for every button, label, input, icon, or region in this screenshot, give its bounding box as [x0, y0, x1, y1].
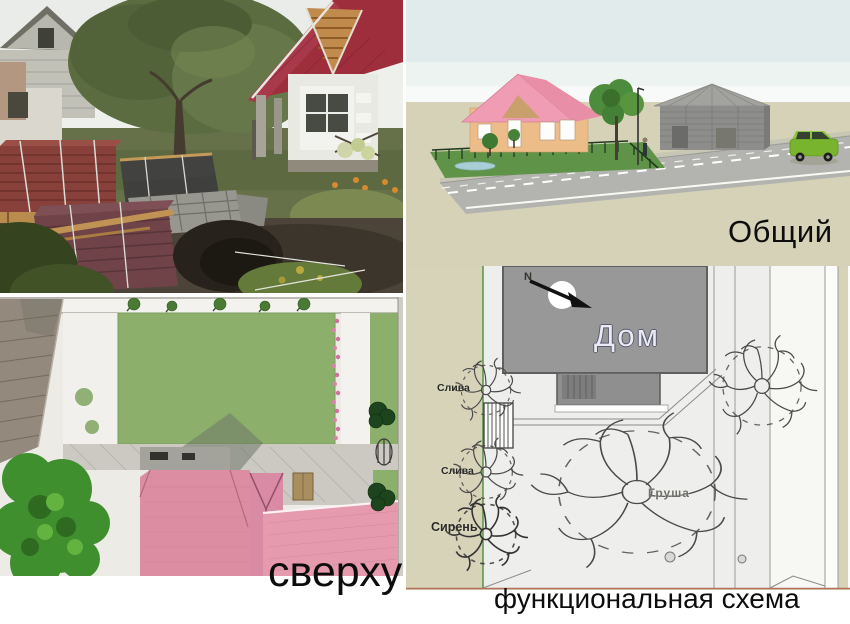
pond: [455, 162, 495, 170]
functional-scheme-caption: функциональная схема: [494, 585, 800, 613]
site-photo-image: [0, 0, 403, 293]
garden-trellis: [376, 439, 392, 465]
site-photo-panel: [0, 0, 403, 293]
scheme-house-label: Дом: [577, 320, 677, 351]
shrub-circle: [738, 555, 746, 563]
plant-label-siren: Сирень: [431, 521, 478, 534]
top-view-panel: [0, 297, 403, 576]
plant-label-sliva-1: Слива: [437, 383, 470, 394]
design-board: Общий сверху функциональная схема Дом N …: [0, 0, 850, 624]
shrub-circle: [665, 552, 675, 562]
top-view-render: [0, 297, 403, 576]
plant-label-sliva-2: Слива: [441, 466, 474, 477]
pedestrian: [643, 138, 648, 157]
tree-label-grusha: Груша: [648, 487, 690, 499]
functional-scheme-drawing: [406, 266, 850, 590]
functional-scheme-panel: [406, 266, 850, 590]
top-view-caption: сверху: [268, 551, 402, 594]
trellis: [484, 403, 513, 448]
compass-north-label: N: [524, 272, 532, 283]
general-view-caption: Общий: [728, 216, 833, 247]
